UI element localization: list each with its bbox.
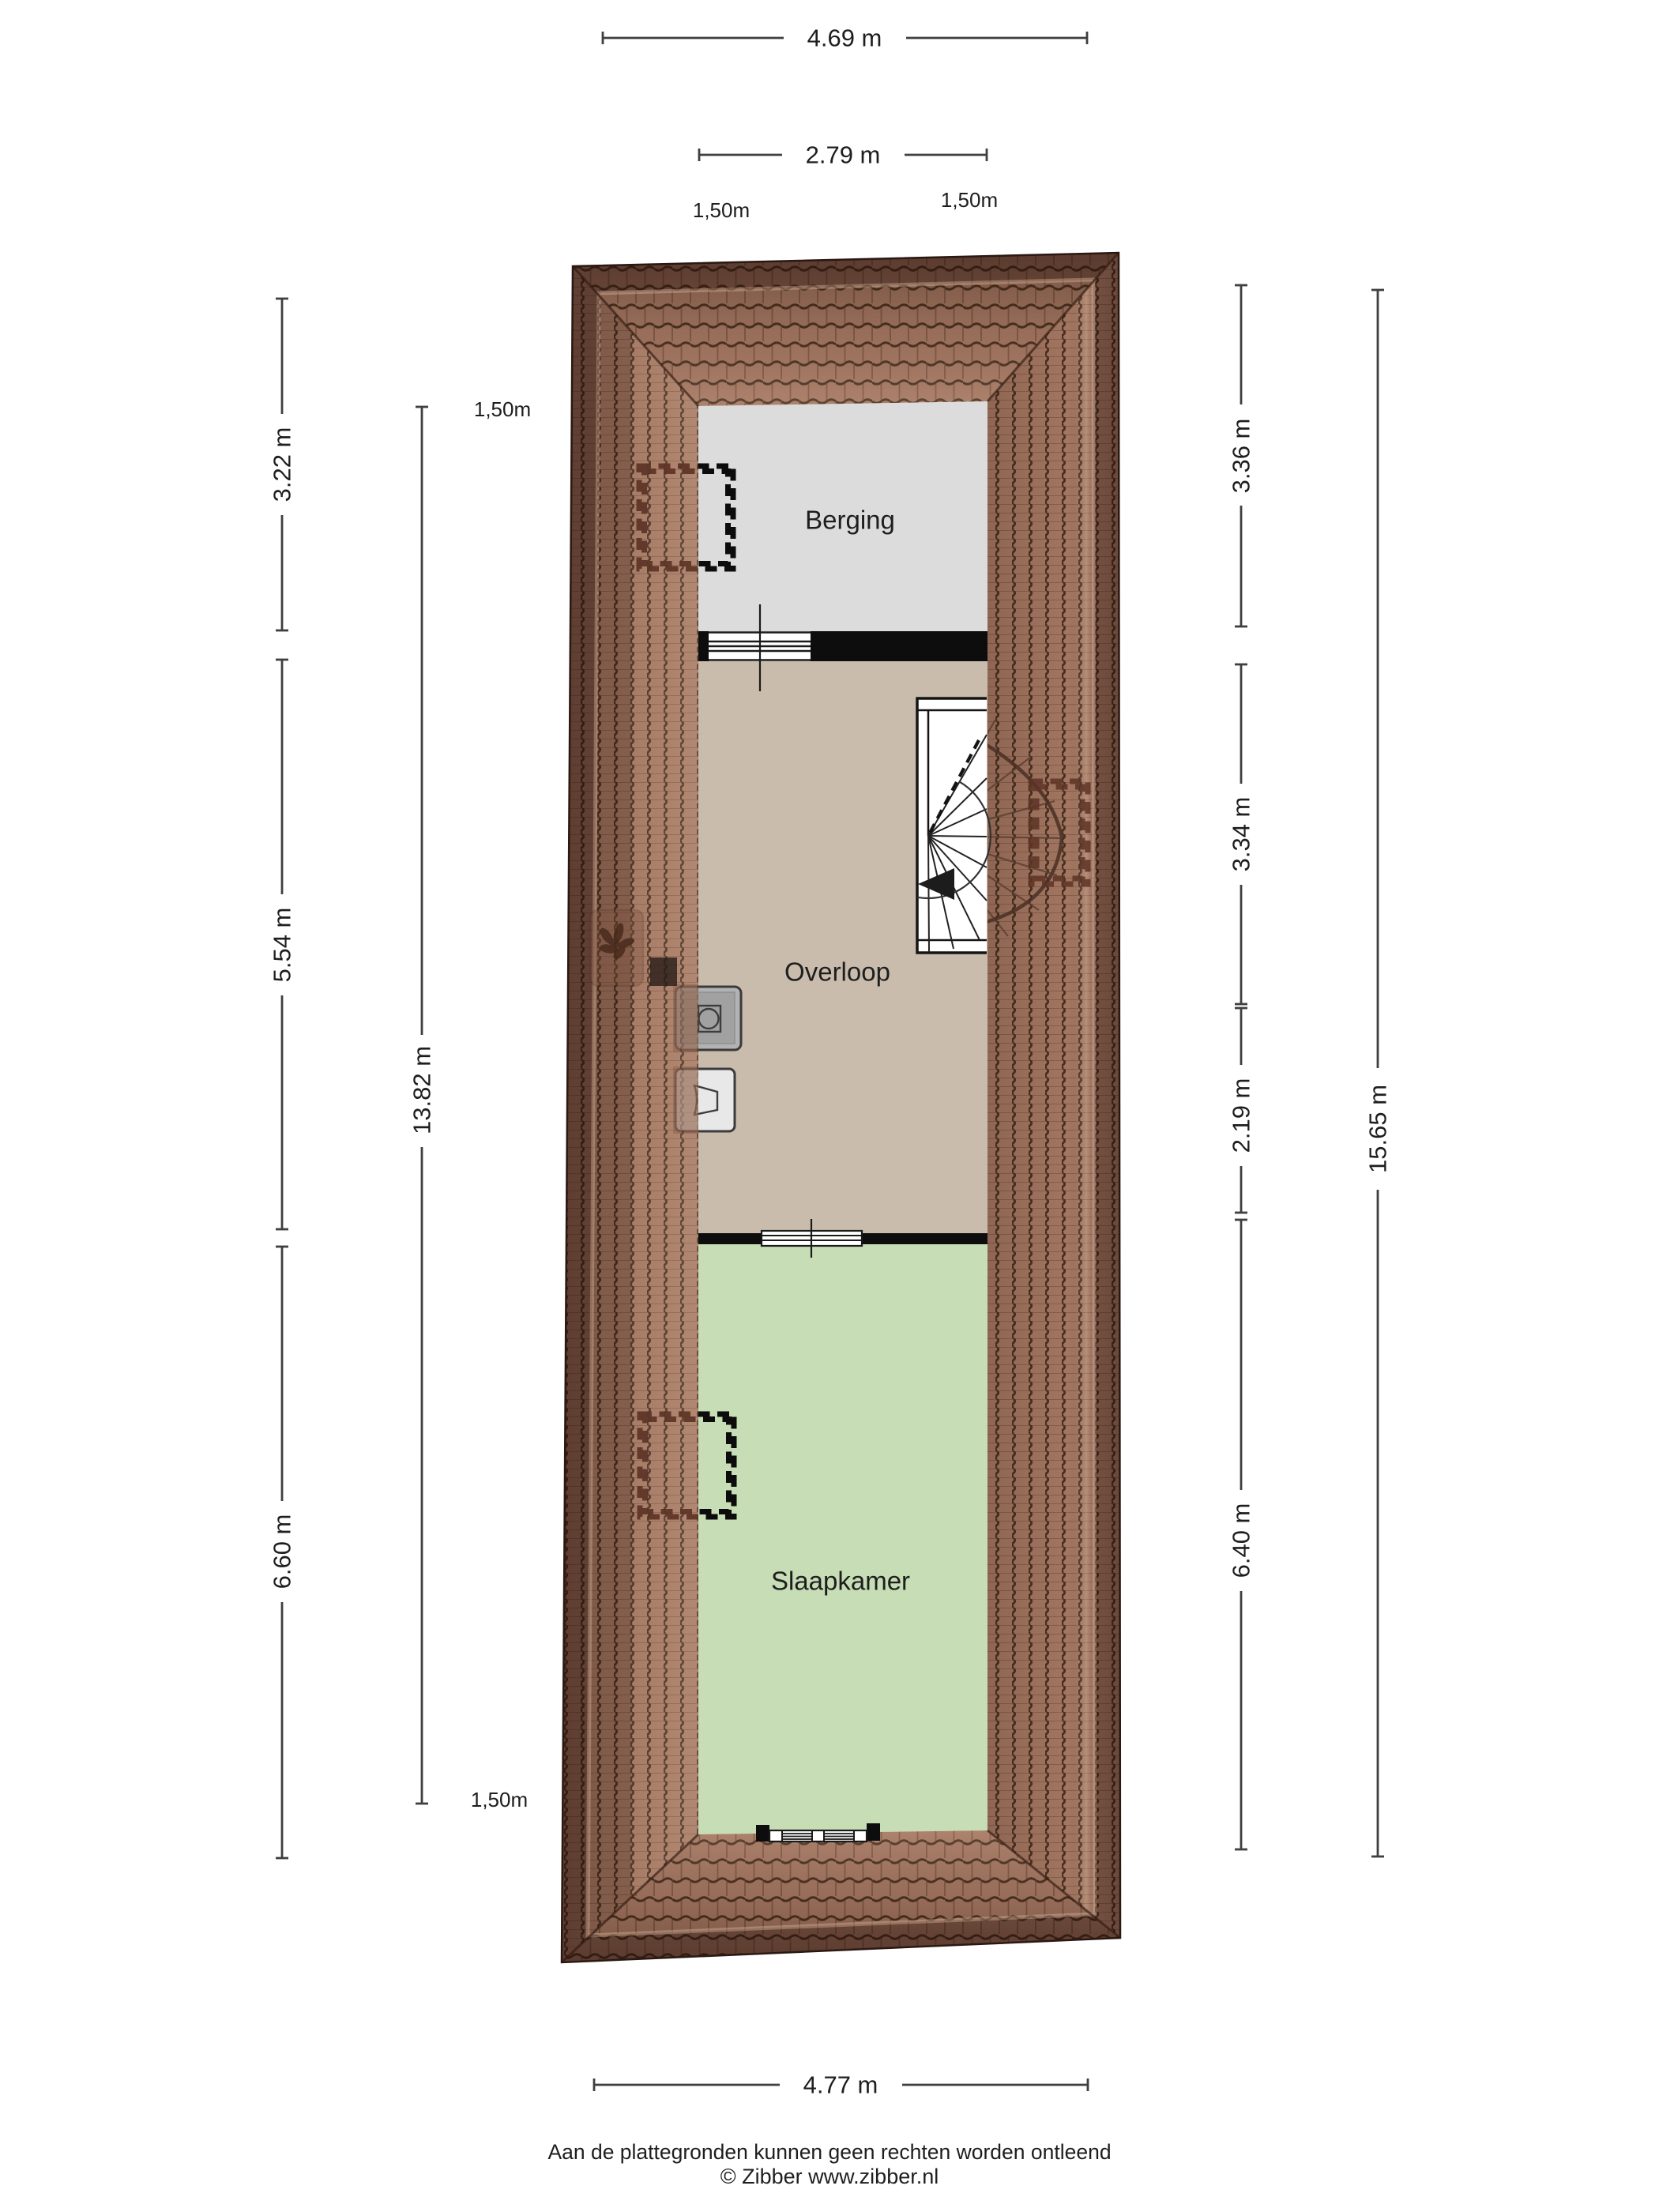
svg-text:5.54 m: 5.54 m bbox=[269, 908, 296, 983]
svg-text:4.69 m: 4.69 m bbox=[807, 24, 882, 52]
svg-text:1,50m: 1,50m bbox=[941, 188, 998, 212]
svg-text:6.40 m: 6.40 m bbox=[1228, 1503, 1255, 1578]
svg-text:3.34 m: 3.34 m bbox=[1228, 797, 1255, 872]
svg-text:Overloop: Overloop bbox=[784, 957, 890, 987]
svg-text:2.19 m: 2.19 m bbox=[1228, 1078, 1255, 1153]
svg-text:© Zibber www.zibber.nl: © Zibber www.zibber.nl bbox=[720, 2165, 939, 2188]
svg-text:4.77 m: 4.77 m bbox=[803, 2071, 878, 2099]
svg-text:15.65 m: 15.65 m bbox=[1364, 1085, 1392, 1173]
svg-text:1,50m: 1,50m bbox=[471, 1788, 528, 1811]
svg-text:3.22 m: 3.22 m bbox=[269, 427, 296, 502]
svg-text:Berging: Berging bbox=[805, 506, 895, 535]
svg-text:1,50m: 1,50m bbox=[693, 198, 750, 222]
svg-text:Slaapkamer: Slaapkamer bbox=[771, 1567, 910, 1596]
svg-text:Aan de plattegronden kunnen ge: Aan de plattegronden kunnen geen rechten… bbox=[547, 2140, 1111, 2164]
svg-text:2.79 m: 2.79 m bbox=[806, 141, 881, 169]
svg-text:3.36 m: 3.36 m bbox=[1228, 419, 1255, 494]
svg-text:13.82 m: 13.82 m bbox=[408, 1046, 436, 1134]
svg-text:1,50m: 1,50m bbox=[474, 397, 531, 421]
svg-text:6.60 m: 6.60 m bbox=[269, 1514, 296, 1589]
